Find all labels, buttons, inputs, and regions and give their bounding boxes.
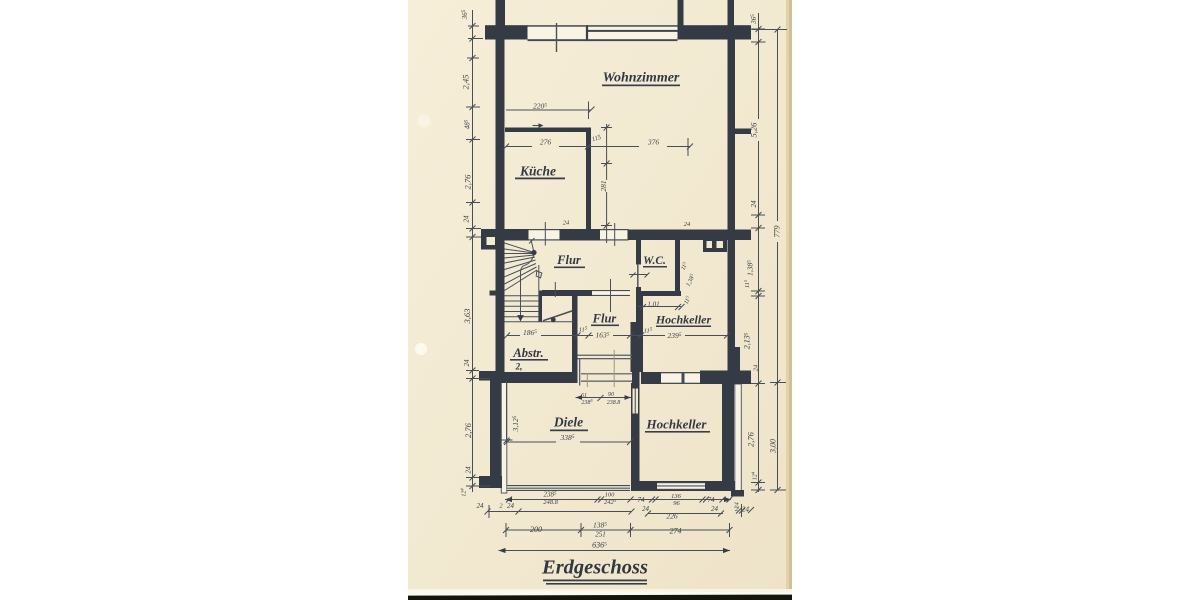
svg-text:24: 24 bbox=[477, 502, 485, 510]
svg-text:274: 274 bbox=[670, 527, 682, 536]
svg-text:24: 24 bbox=[711, 505, 719, 513]
svg-text:24: 24 bbox=[463, 359, 471, 367]
svg-text:Flur: Flur bbox=[556, 253, 581, 267]
svg-text:74: 74 bbox=[708, 496, 716, 504]
svg-text:136: 136 bbox=[671, 493, 682, 500]
svg-text:2,45: 2,45 bbox=[461, 75, 471, 90]
svg-text:779: 779 bbox=[773, 226, 782, 238]
svg-text:248.8: 248.8 bbox=[543, 499, 558, 506]
svg-text:281: 281 bbox=[599, 180, 608, 191]
svg-text:1,01: 1,01 bbox=[647, 301, 659, 309]
svg-text:24: 24 bbox=[753, 364, 760, 371]
svg-text:W.C.: W.C. bbox=[643, 255, 666, 267]
svg-text:74: 74 bbox=[638, 496, 646, 504]
svg-text:61: 61 bbox=[581, 393, 587, 399]
svg-text:Erdgeschoss: Erdgeschoss bbox=[541, 557, 648, 579]
svg-text:3,63: 3,63 bbox=[462, 309, 472, 325]
svg-text:Flur: Flur bbox=[592, 312, 617, 326]
svg-text:24: 24 bbox=[642, 505, 650, 513]
svg-text:Diele: Diele bbox=[553, 415, 583, 430]
svg-text:96: 96 bbox=[673, 500, 680, 507]
svg-text:2,76: 2,76 bbox=[463, 174, 473, 190]
svg-text:251: 251 bbox=[595, 531, 606, 539]
svg-text:376: 376 bbox=[647, 138, 660, 147]
svg-text:24: 24 bbox=[507, 502, 515, 510]
svg-text:238.8: 238.8 bbox=[607, 400, 621, 406]
svg-text:24: 24 bbox=[563, 220, 570, 227]
svg-text:Abstr.: Abstr. bbox=[512, 346, 543, 360]
svg-text:Wohnzimmer: Wohnzimmer bbox=[603, 71, 680, 86]
svg-text:200: 200 bbox=[530, 525, 542, 534]
svg-text:24: 24 bbox=[463, 215, 471, 223]
svg-text:24: 24 bbox=[750, 200, 758, 208]
svg-text:2,76: 2,76 bbox=[746, 431, 756, 447]
svg-text:226: 226 bbox=[666, 512, 678, 521]
svg-text:Küche: Küche bbox=[519, 164, 556, 179]
svg-text:5,26: 5,26 bbox=[749, 122, 759, 138]
svg-text:2,: 2, bbox=[515, 362, 523, 372]
svg-text:3,00: 3,00 bbox=[769, 439, 778, 454]
svg-text:Hochkeller: Hochkeller bbox=[646, 417, 708, 432]
svg-text:2,76: 2,76 bbox=[463, 422, 473, 438]
svg-text:24: 24 bbox=[742, 506, 750, 514]
svg-text:90: 90 bbox=[608, 392, 614, 398]
svg-text:Hochkeller: Hochkeller bbox=[655, 313, 712, 327]
svg-text:276: 276 bbox=[540, 138, 552, 147]
svg-text:24: 24 bbox=[465, 466, 473, 474]
svg-text:24: 24 bbox=[684, 221, 691, 228]
